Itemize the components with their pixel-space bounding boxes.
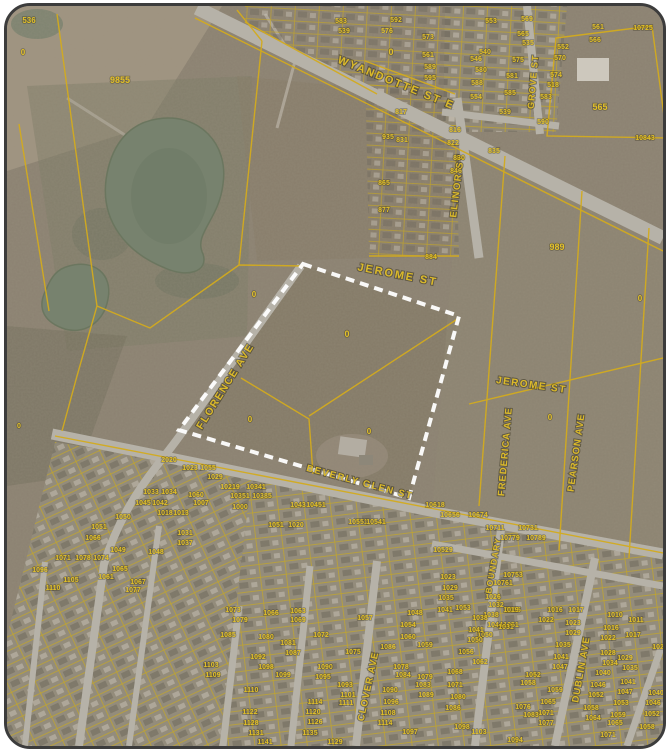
parcel-label: 565 — [517, 31, 529, 38]
parcel-label: 0 — [367, 427, 372, 436]
parcel-label: 1072 — [313, 632, 329, 639]
parcel-label: 1071 — [538, 710, 554, 717]
building — [577, 58, 609, 81]
parcel-label: 1057 — [357, 615, 373, 622]
parcel-label: 0 — [21, 48, 26, 57]
parcel-label: 0 — [388, 47, 393, 57]
parcel-label: 10674 — [468, 512, 488, 519]
parcel-label: 1080 — [258, 634, 274, 641]
parcel-label: 10711 — [485, 525, 504, 532]
parcel-label: 10753 — [503, 572, 523, 579]
parcel-label: 1013 — [173, 510, 189, 517]
parcel-label: 1079 — [417, 674, 433, 681]
parcel-label: 1022 — [600, 635, 616, 642]
parcel-label: 1023 — [565, 620, 581, 627]
parcel-label: 1099 — [275, 672, 291, 679]
parcel-label: 570 — [554, 55, 566, 62]
parcel-label: 1051 — [268, 522, 284, 529]
parcel-label: 1090 — [317, 664, 333, 671]
parcel-label: 1031 — [498, 624, 514, 631]
parcel-label: 1029 — [565, 630, 581, 637]
parcel-label: 1035 — [438, 595, 454, 602]
parcel-label: 1010 — [607, 612, 623, 619]
parcel-label: 1128 — [243, 720, 258, 727]
parcel-label: 569 — [521, 16, 533, 23]
parcel-label: 1096 — [383, 699, 399, 706]
parcel-label: 1040 — [595, 670, 611, 677]
parcel-label: 0 — [344, 329, 349, 339]
parcel-label: 583 — [540, 94, 552, 101]
parcel-label: 518 — [547, 82, 559, 89]
parcel-label: 1054 — [400, 622, 416, 629]
parcel-label: 1122 — [242, 709, 257, 716]
parcel-label: 1023 — [182, 465, 198, 472]
parcel-label: 1083 — [523, 712, 539, 719]
parcel-label: 1077 — [125, 587, 141, 594]
parcel-label: 1086 — [445, 705, 461, 712]
parcel-label: 1045 — [135, 500, 151, 507]
parcel-label: 1019 — [503, 607, 519, 614]
parcel-label: 1037 — [177, 540, 193, 547]
parcel-label: 1060 — [188, 492, 204, 499]
parcel-label: 2020 — [161, 457, 177, 464]
parcel-label: 935 — [382, 134, 394, 141]
parcel-label: 1131 — [248, 730, 263, 737]
parcel-label: 1066 — [263, 610, 279, 617]
parcel-label: 1061 — [98, 574, 114, 581]
parcel-label: 1032 — [488, 602, 504, 609]
parcel-label: 1135 — [302, 730, 317, 737]
parcel-label: 1067 — [130, 579, 146, 586]
aerial-map[interactable]: WYANDOTTE ST EELINOR STGROVE STJEROME ST… — [7, 6, 663, 746]
parcel-label: 1079 — [232, 617, 248, 624]
parcel-label: 1081 — [280, 640, 296, 647]
parcel-label: 1029 — [207, 474, 223, 481]
parcel-label: 0 — [252, 290, 257, 299]
parcel-label: 10219 — [220, 484, 240, 491]
parcel-label: 1075 — [345, 649, 361, 656]
parcel-label: 1023 — [440, 574, 456, 581]
parcel-label: 1120 — [305, 709, 320, 716]
parcel-label: 10725 — [633, 25, 653, 32]
parcel-label: 592 — [390, 17, 402, 24]
parcel-label: 1129 — [327, 739, 342, 746]
parcel-label: 1055 — [200, 465, 216, 472]
parcel-label: 561 — [422, 52, 434, 59]
parcel-label: 539 — [499, 109, 511, 116]
parcel-label: 1059 — [417, 642, 433, 649]
parcel-label: 1016 — [603, 625, 619, 632]
parcel-label: 817 — [395, 109, 407, 116]
parcel-label: 1068 — [447, 669, 463, 676]
parcel-label: 1041 — [620, 679, 636, 686]
parcel-label: 1017 — [568, 607, 584, 614]
parcel-label: 1011 — [628, 617, 643, 624]
parcel-label: 1020 — [288, 522, 304, 529]
parcel-label: 1034 — [161, 489, 177, 496]
parcel-label: 1058 — [520, 680, 536, 687]
parcel-label: 1059 — [547, 687, 563, 694]
parcel-label: 1035 — [622, 665, 638, 672]
parcel-label: 846 — [450, 168, 462, 175]
parcel-label: 580 — [475, 67, 487, 74]
parcel-label: 1007 — [193, 500, 209, 507]
parcel-label: 1089 — [418, 692, 434, 699]
parcel-label: 1048 — [407, 610, 423, 617]
map-viewport: WYANDOTTE ST EELINOR STGROVE STJEROME ST… — [4, 3, 666, 749]
parcel-label: 552 — [557, 44, 569, 51]
parcel-label: 590 — [537, 119, 549, 126]
parcel-label: 10656 — [440, 512, 460, 519]
parcel-label: 1090 — [382, 687, 398, 694]
parcel-label: 1069 — [290, 617, 306, 624]
parcel-label: 1053 — [613, 700, 629, 707]
parcel-label: 536 — [22, 16, 36, 25]
parcel-label: 830 — [453, 155, 465, 162]
parcel-label: 1094 — [507, 737, 523, 744]
parcel-label: 1085 — [220, 632, 236, 639]
parcel-label: 1103 — [471, 729, 486, 736]
parcel-label: 0 — [638, 294, 643, 303]
parcel-label: 1028 — [600, 650, 616, 657]
parcel-label: 1051 — [91, 524, 107, 531]
parcel-label: 1022 — [538, 617, 554, 624]
parcel-label: 1086 — [380, 644, 396, 651]
parcel-label: 1059 — [610, 712, 626, 719]
parcel-label: 1041 — [468, 627, 484, 634]
building — [359, 455, 373, 465]
parcel-label: 1062 — [472, 659, 488, 666]
parcel-label: 1097 — [402, 729, 418, 736]
parcel-label: 1093 — [337, 682, 353, 689]
parcel-label: 539 — [338, 28, 350, 35]
parcel-label: 10385 — [252, 493, 272, 500]
parcel-label: 10351 — [230, 493, 250, 500]
parcel-label: 540 — [479, 49, 491, 56]
parcel-label: 1017 — [625, 632, 641, 639]
parcel-label: 1047 — [617, 689, 633, 696]
parcel-label: 1083 — [415, 682, 431, 689]
parcel-label: 1098 — [258, 664, 274, 671]
parcel-label: 1108 — [380, 710, 395, 717]
parcel-label: 561 — [592, 24, 604, 31]
parcel-label: 1058 — [639, 724, 655, 731]
parcel-label: 0 — [17, 423, 21, 430]
parcel-label: 1078 — [393, 664, 409, 671]
parcel-label: 566 — [589, 37, 601, 44]
parcel-label: 1052 — [588, 692, 604, 699]
page-background: WYANDOTTE ST EELINOR STGROVE STJEROME ST… — [0, 0, 667, 749]
parcel-label: 816 — [449, 127, 461, 134]
parcel-label: 1126 — [307, 719, 322, 726]
parcel-label: 1035 — [555, 642, 571, 649]
parcel-label: 1111 — [339, 700, 354, 707]
parcel-label: 1141 — [257, 739, 272, 746]
parcel-label: 1038 — [472, 615, 488, 622]
parcel-label: 1042 — [152, 500, 168, 507]
parcel-label: 1048 — [148, 549, 164, 556]
parcel-label: 1096 — [32, 567, 48, 574]
parcel-label: 10731 — [518, 525, 538, 532]
parcel-label: 865 — [378, 180, 390, 187]
parcel-label: 576 — [381, 28, 393, 35]
parcel-label: 877 — [378, 207, 390, 214]
parcel-label: 1031 — [177, 530, 193, 537]
parcel-label: 1049 — [110, 547, 126, 554]
parcel-label: 1041 — [553, 654, 569, 661]
parcel-label: 1114 — [308, 699, 323, 706]
parcel-label: 1029 — [617, 655, 633, 662]
parcel-label: 1077 — [538, 720, 554, 727]
parcel-label: 1043 — [290, 502, 306, 509]
parcel-label: 0 — [548, 413, 553, 422]
parcel-label: 588 — [471, 80, 483, 87]
parcel-label: 1040 — [648, 690, 663, 697]
parcel-label: 10551 — [348, 519, 368, 526]
parcel-label: 10843 — [635, 135, 655, 142]
parcel-label: 553 — [485, 18, 497, 25]
parcel-label: 1076 — [515, 704, 531, 711]
parcel-label: 1046 — [590, 682, 606, 689]
parcel-label: 581 — [506, 73, 518, 80]
parcel-label: 1026 — [485, 594, 501, 601]
parcel-label: 546 — [470, 56, 482, 63]
parcel-label: 575 — [512, 57, 524, 64]
parcel-label: 884 — [425, 254, 437, 261]
parcel-label: 1053 — [455, 605, 471, 612]
parcel-label: 1066 — [85, 535, 101, 542]
parcel-label: 1098 — [454, 724, 470, 731]
parcel-label: 10541 — [366, 519, 386, 526]
parcel-label: 1073 — [225, 607, 241, 614]
parcel-label: 835 — [488, 148, 500, 155]
parcel-label: 0 — [248, 415, 253, 424]
parcel-label: 1074 — [93, 555, 109, 562]
parcel-label: 1064 — [585, 715, 601, 722]
parcel-label: 1058 — [583, 705, 599, 712]
parcel-label: 1080 — [450, 694, 466, 701]
parcel-label: 1109 — [205, 672, 220, 679]
parcel-label: 1071 — [55, 555, 71, 562]
parcel-label: 1110 — [244, 687, 259, 694]
parcel-label: 1052 — [525, 672, 541, 679]
parcel-label: 585 — [504, 90, 516, 97]
parcel-label: 554 — [470, 94, 482, 101]
parcel-label: 1087 — [285, 650, 301, 657]
parcel-label: 1101 — [340, 692, 355, 699]
parcel-label: 10618 — [425, 502, 445, 509]
parcel-label: 1071 — [600, 732, 616, 739]
parcel-label: 1034 — [602, 660, 618, 667]
parcel-label: 10451 — [306, 502, 326, 509]
parcel-label: 1041 — [437, 607, 453, 614]
parcel-label: 574 — [550, 72, 562, 79]
building — [338, 436, 367, 458]
parcel-label: 1063 — [290, 608, 306, 615]
parcel-label: 589 — [424, 64, 436, 71]
parcel-label: 1029 — [442, 585, 458, 592]
parcel-label: 9855 — [110, 75, 130, 85]
parcel-label: 1065 — [112, 566, 128, 573]
parcel-label: 1016 — [547, 607, 563, 614]
parcel-label: 1060 — [400, 634, 416, 641]
parcel-label: 1065 — [540, 699, 556, 706]
parcel-label: 10789 — [526, 535, 546, 542]
parcel-label: 1103 — [203, 662, 218, 669]
parcel-label: 1018 — [157, 510, 173, 517]
parcel-label: 595 — [424, 75, 436, 82]
parcel-label: 1056 — [458, 649, 474, 656]
parcel-label: 583 — [335, 18, 347, 25]
parcel-label: 1023 — [652, 644, 663, 651]
parcel-label: 10779 — [500, 535, 520, 542]
parcel-label: 10341 — [246, 484, 266, 491]
parcel-label: 573 — [422, 34, 434, 41]
parcel-label: 1033 — [143, 489, 159, 496]
parcel-label: 1084 — [395, 672, 411, 679]
parcel-label: 1071 — [447, 682, 463, 689]
parcel-label: 1050 — [467, 637, 483, 644]
parcel-label: 1046 — [645, 700, 661, 707]
parcel-label: 1110 — [46, 585, 61, 592]
parcel-label: 535 — [522, 40, 534, 47]
parcel-label: 1050 — [115, 514, 131, 521]
parcel-label: 989 — [549, 242, 564, 252]
parcel-label: 1095 — [315, 674, 331, 681]
parcel-label: 565 — [592, 102, 607, 112]
parcel-label: 10761 — [493, 580, 513, 587]
parcel-label: 1114 — [378, 720, 393, 727]
parcel-label: 1052 — [644, 711, 660, 718]
parcel-label: 1105 — [63, 577, 78, 584]
parcel-label: 822 — [447, 140, 459, 147]
parcel-label: 1078 — [75, 555, 91, 562]
parcel-label: 1000 — [232, 504, 248, 511]
parcel-label: 1092 — [250, 654, 266, 661]
parcel-label: 10529 — [433, 547, 453, 554]
parcel-label: 831 — [396, 137, 408, 144]
parcel-label: 1065 — [607, 720, 623, 727]
parcel-label: 1047 — [552, 664, 568, 671]
